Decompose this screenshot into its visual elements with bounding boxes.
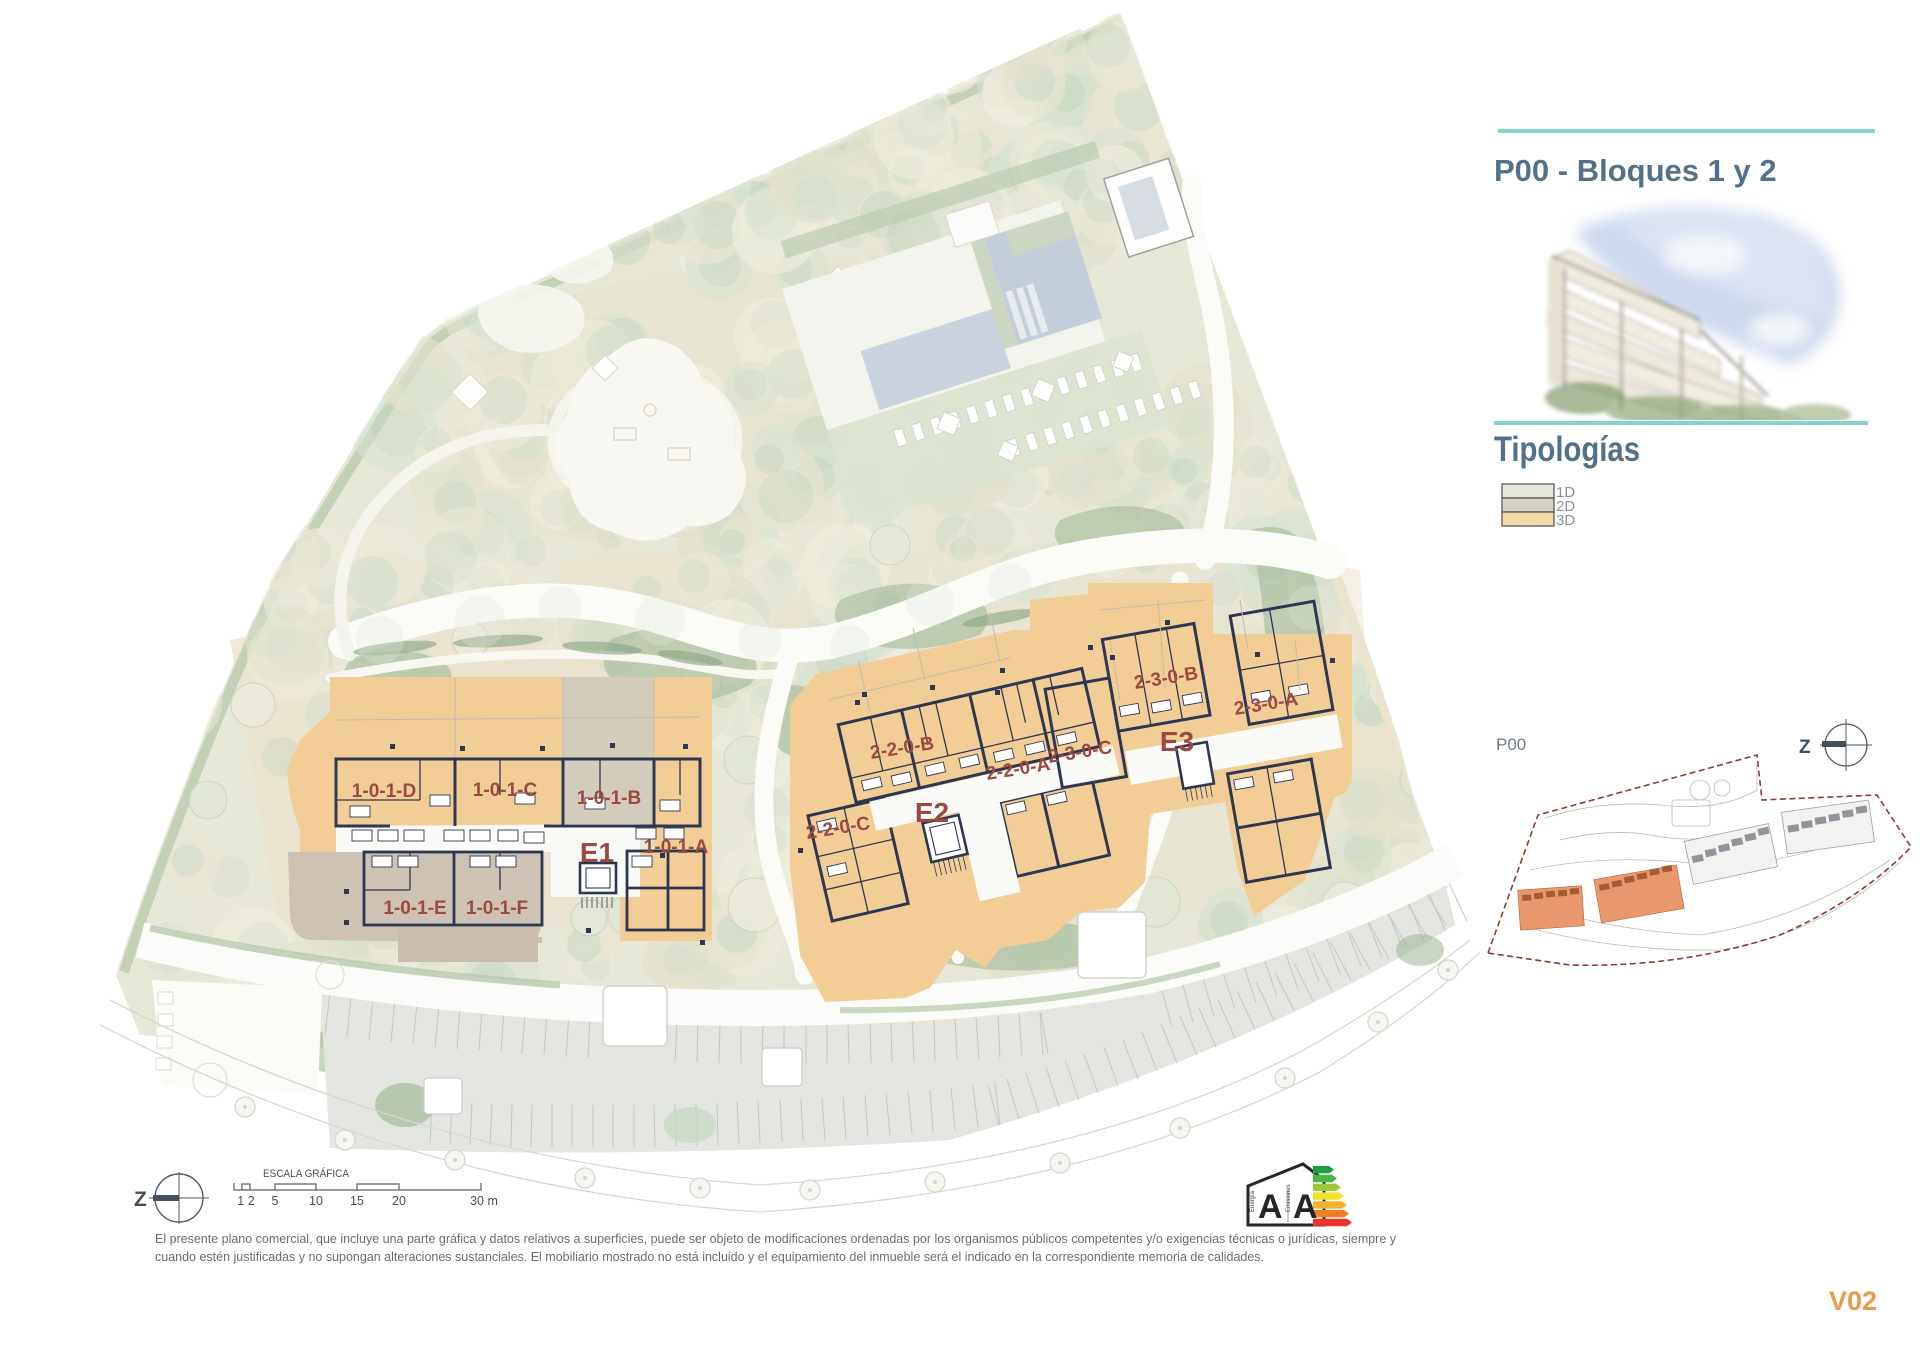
svg-text:1-0-1-A: 1-0-1-A (644, 837, 709, 858)
svg-text:V02: V02 (1829, 1286, 1877, 1316)
svg-text:P00 - Bloques 1 y 2: P00 - Bloques 1 y 2 (1494, 153, 1777, 188)
svg-text:Z: Z (134, 1188, 147, 1211)
svg-text:1 2: 1 2 (237, 1194, 254, 1208)
svg-text:cuando estén justificadas y no: cuando estén justificadas y no supongan … (155, 1250, 1264, 1264)
svg-text:1-0-1-C: 1-0-1-C (473, 780, 538, 801)
svg-text:1-0-1-F: 1-0-1-F (466, 898, 528, 919)
svg-text:E2: E2 (915, 797, 949, 828)
svg-text:20: 20 (392, 1194, 406, 1208)
svg-text:30 m: 30 m (470, 1194, 498, 1208)
svg-text:ESCALA GRÁFICA: ESCALA GRÁFICA (263, 1167, 350, 1180)
svg-text:15: 15 (350, 1194, 364, 1208)
svg-text:1-0-1-E: 1-0-1-E (383, 898, 446, 919)
svg-text:El presente plano comercial, q: El presente plano comercial, que incluye… (155, 1232, 1397, 1246)
svg-text:Z: Z (1799, 737, 1811, 758)
svg-text:Energía: Energía (1250, 1190, 1256, 1212)
svg-text:Emisiones: Emisiones (1286, 1184, 1292, 1212)
svg-text:A: A (1293, 1188, 1318, 1226)
svg-text:E3: E3 (1160, 726, 1194, 757)
svg-text:3D: 3D (1556, 512, 1575, 529)
svg-text:Tipologías: Tipologías (1494, 430, 1640, 469)
svg-text:E1: E1 (580, 837, 614, 868)
svg-text:A: A (1258, 1188, 1283, 1226)
svg-text:1-0-1-B: 1-0-1-B (577, 788, 641, 809)
svg-text:1-0-1-D: 1-0-1-D (352, 781, 416, 802)
svg-text:5: 5 (272, 1194, 279, 1208)
svg-text:10: 10 (309, 1194, 323, 1208)
svg-text:P00: P00 (1496, 735, 1526, 754)
